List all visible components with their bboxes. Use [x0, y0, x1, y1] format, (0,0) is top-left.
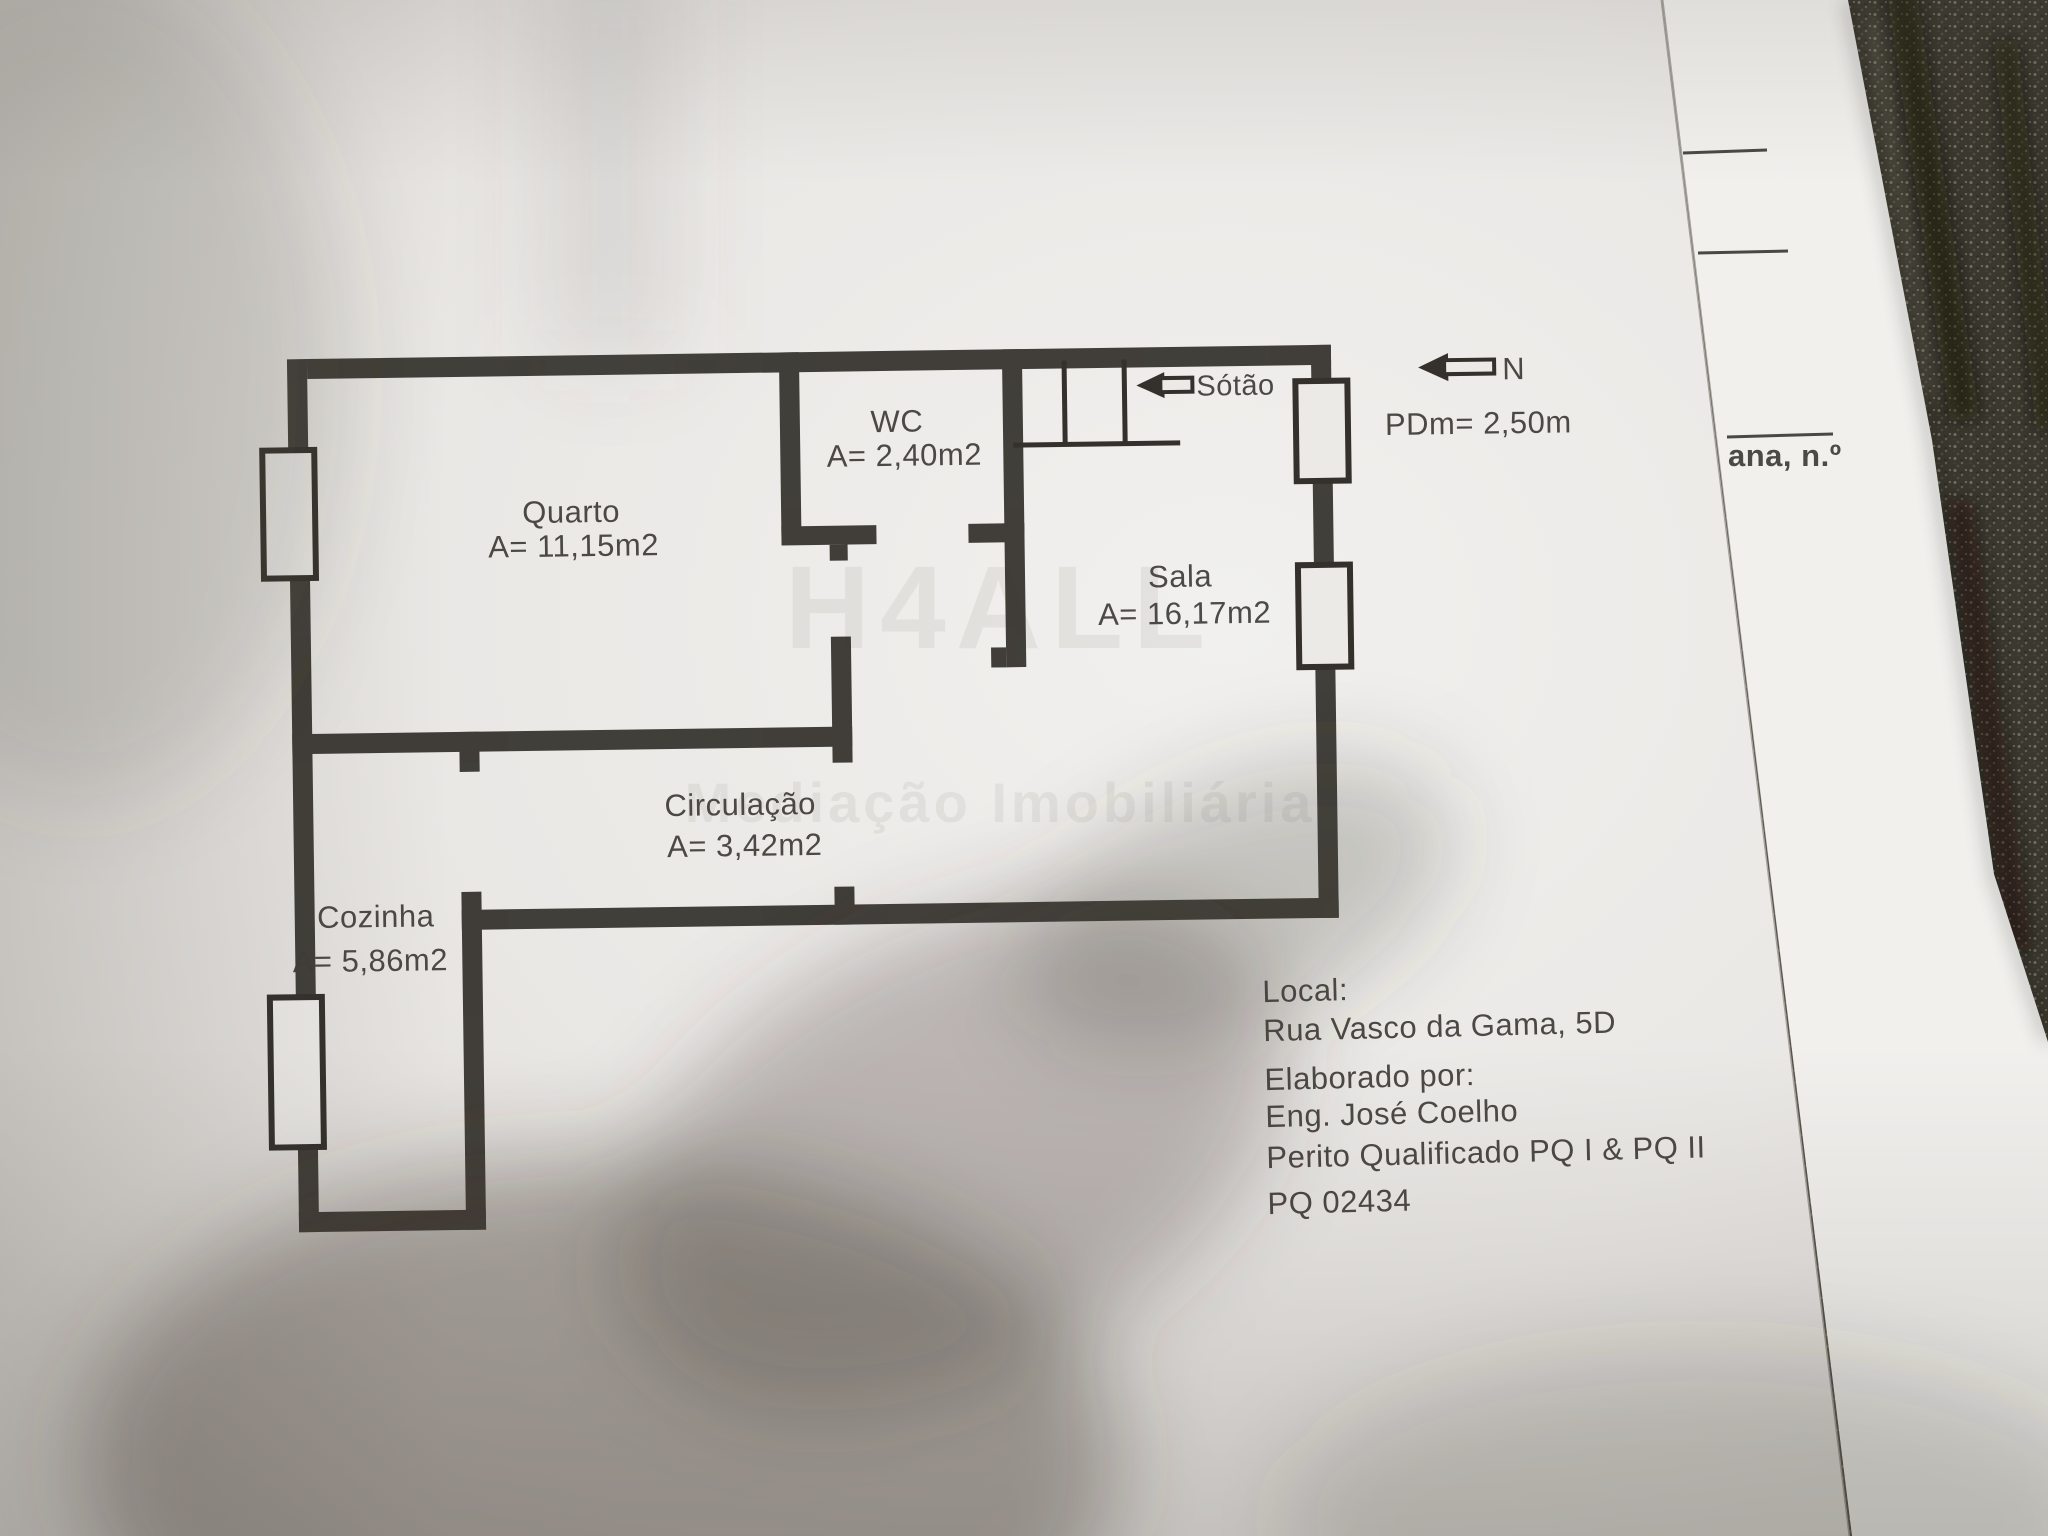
floor-plan-photo: ana, n.º H4ALL Mediação Imobiliária — [0, 0, 2048, 1536]
floor-plan-scene: ana, n.º H4ALL Mediação Imobiliária — [0, 0, 2048, 1536]
vignette — [0, 0, 2048, 1536]
